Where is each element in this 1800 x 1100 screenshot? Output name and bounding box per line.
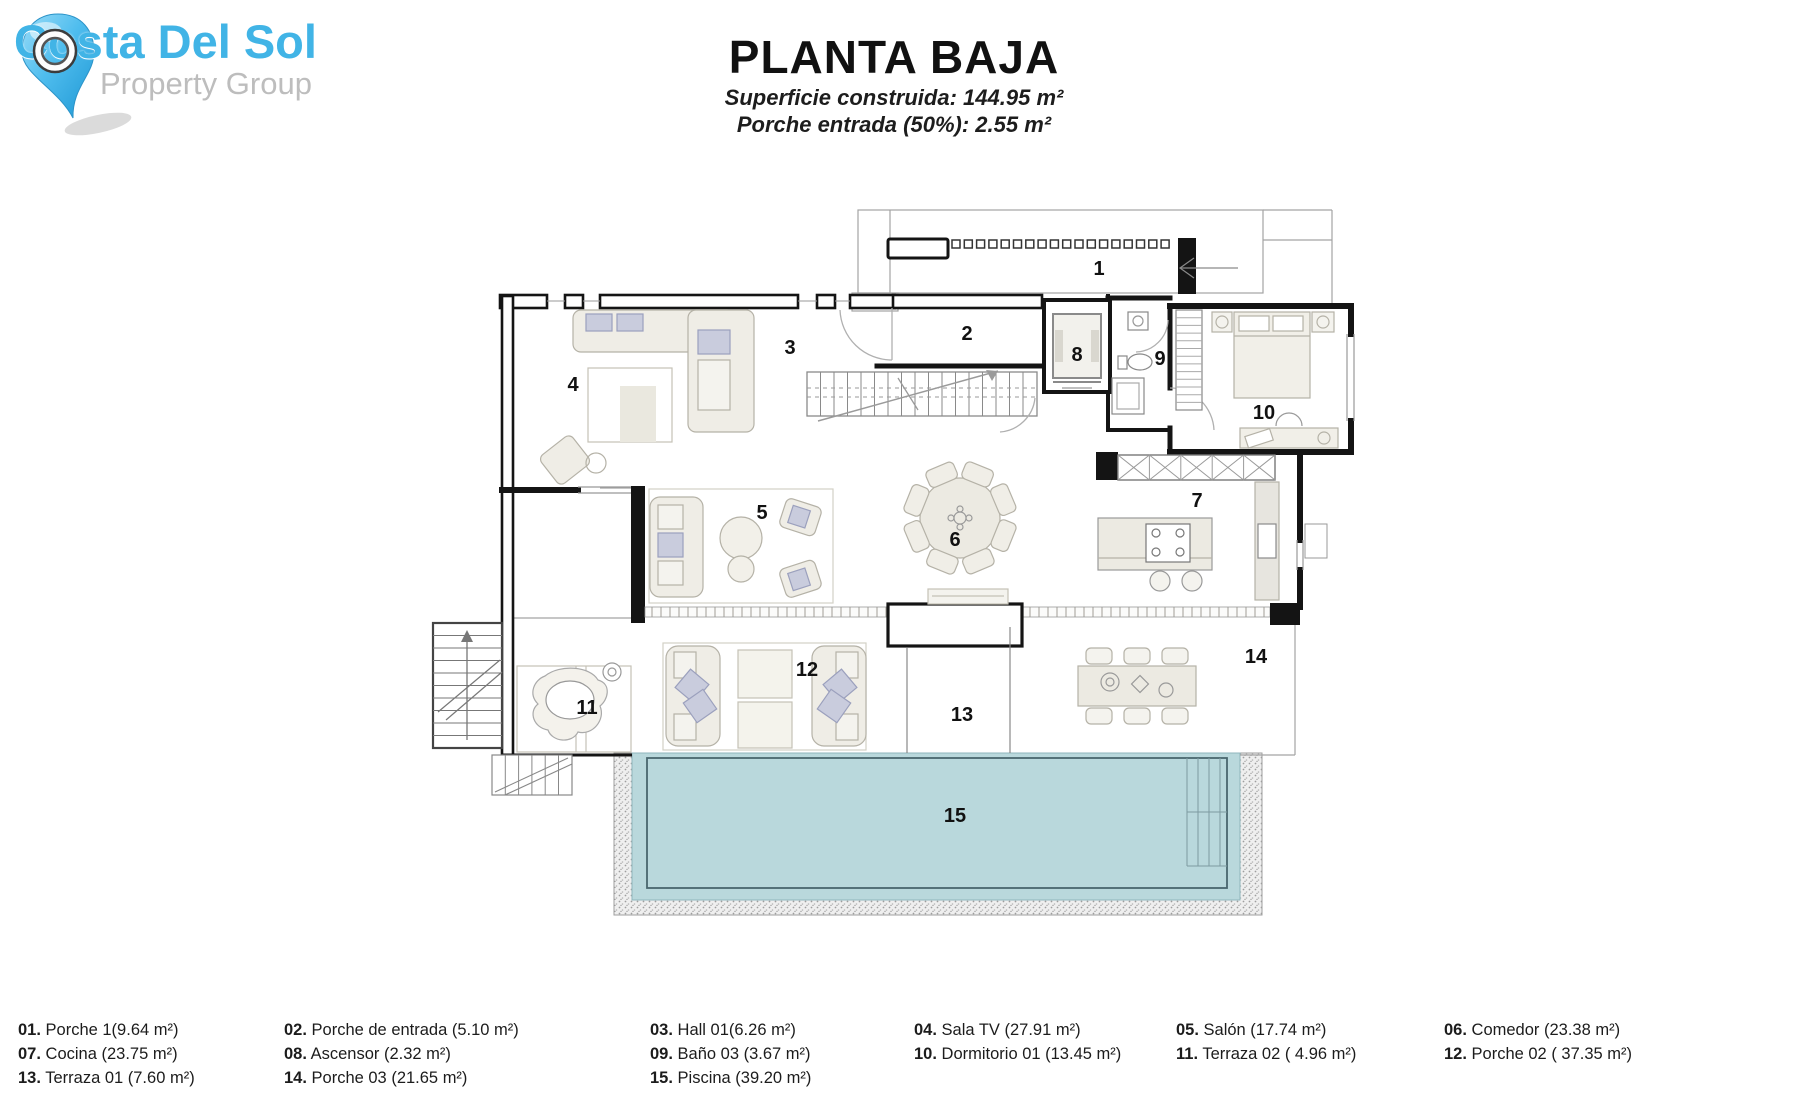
legend-column-1: 01. Porche 1(9.64 m²)07. Cocina (23.75 m… — [18, 1018, 195, 1090]
room-label-9: 9 — [1154, 348, 1165, 370]
floor-plan-page: Costa Del Sol Property Group PLANTA BAJA… — [0, 0, 1800, 1100]
lower-staircase — [492, 755, 572, 795]
room-label-8: 8 — [1071, 344, 1082, 366]
room-label-14: 14 — [1245, 646, 1268, 668]
legend-column-3: 03. Hall 01(6.26 m²)09. Baño 03 (3.67 m²… — [650, 1018, 811, 1090]
legend-column-6: 06. Comedor (23.38 m²)12. Porche 02 ( 37… — [1444, 1018, 1632, 1066]
room-label-1: 1 — [1093, 258, 1104, 280]
legend-item: 09. Baño 03 (3.67 m²) — [650, 1042, 811, 1066]
legend-item: 12. Porche 02 ( 37.35 m²) — [1444, 1042, 1632, 1066]
porch-pergola — [888, 238, 1238, 294]
legend-item: 14. Porche 03 (21.65 m²) — [284, 1066, 519, 1090]
room-label-6: 6 — [949, 529, 960, 551]
room-label-10: 10 — [1253, 402, 1275, 424]
legend-item: 04. Sala TV (27.91 m²) — [914, 1018, 1121, 1042]
legend-item: 05. Salón (17.74 m²) — [1176, 1018, 1356, 1042]
exterior-staircase — [433, 623, 502, 748]
room-legend: 01. Porche 1(9.64 m²)07. Cocina (23.75 m… — [0, 1018, 1800, 1098]
room-label-2: 2 — [961, 323, 972, 345]
legend-column-4: 04. Sala TV (27.91 m²)10. Dormitorio 01 … — [914, 1018, 1121, 1066]
legend-item: 06. Comedor (23.38 m²) — [1444, 1018, 1632, 1042]
floor-plan-drawing: 123456789101112131415 — [0, 0, 1800, 1100]
brand-name: Costa Del Sol — [14, 14, 317, 69]
pool — [614, 753, 1262, 915]
room-label-11: 11 — [576, 697, 597, 719]
room-label-13: 13 — [951, 704, 973, 726]
room-label-5: 5 — [756, 502, 767, 524]
legend-item: 13. Terraza 01 (7.60 m²) — [18, 1066, 195, 1090]
legend-item: 15. Piscina (39.20 m²) — [650, 1066, 811, 1090]
legend-item: 08. Ascensor (2.32 m²) — [284, 1042, 519, 1066]
room-label-15: 15 — [944, 805, 966, 827]
main-staircase — [807, 370, 1037, 421]
legend-item: 10. Dormitorio 01 (13.45 m²) — [914, 1042, 1121, 1066]
legend-item: 07. Cocina (23.75 m²) — [18, 1042, 195, 1066]
brand-tagline: Property Group — [100, 66, 312, 102]
legend-item: 02. Porche de entrada (5.10 m²) — [284, 1018, 519, 1042]
legend-column-5: 05. Salón (17.74 m²)11. Terraza 02 ( 4.9… — [1176, 1018, 1356, 1066]
room-label-12: 12 — [796, 659, 818, 681]
roof-outline — [502, 210, 1332, 755]
legend-item: 01. Porche 1(9.64 m²) — [18, 1018, 195, 1042]
wardrobe-strip — [1118, 455, 1275, 480]
legend-column-2: 02. Porche de entrada (5.10 m²)08. Ascen… — [284, 1018, 519, 1090]
legend-item: 11. Terraza 02 ( 4.96 m²) — [1176, 1042, 1356, 1066]
room-label-4: 4 — [567, 374, 579, 396]
room-label-7: 7 — [1191, 490, 1202, 512]
legend-item: 03. Hall 01(6.26 m²) — [650, 1018, 811, 1042]
room-label-3: 3 — [784, 337, 795, 359]
